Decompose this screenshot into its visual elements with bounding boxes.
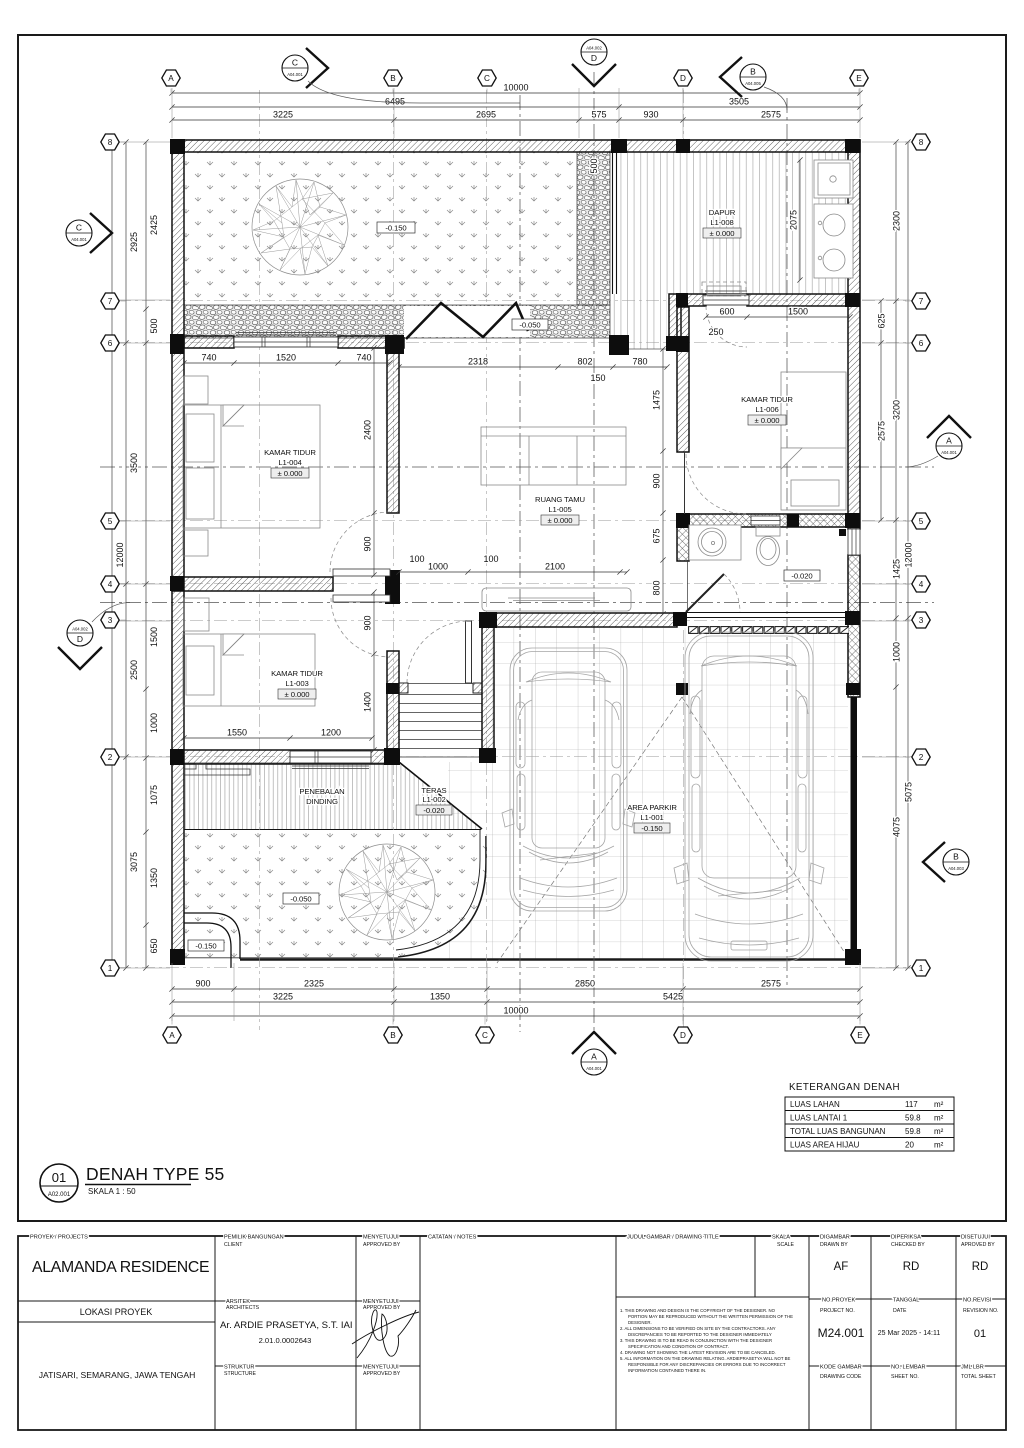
svg-text:L1-002: L1-002 — [422, 795, 445, 804]
svg-text:575: 575 — [591, 110, 606, 120]
svg-text:Ar. ARDIE PRASETYA, S.T. I: Ar. ARDIE PRASETYA, S.T. IAI — [220, 1320, 353, 1331]
svg-text:6: 6 — [108, 339, 113, 348]
svg-text:1400: 1400 — [363, 692, 373, 712]
svg-text:± 0.000: ± 0.000 — [285, 690, 310, 699]
svg-text:RUANG TAMU: RUANG TAMU — [535, 495, 585, 504]
svg-text:± 0.000: ± 0.000 — [278, 469, 303, 478]
svg-text:m²: m² — [934, 1100, 944, 1109]
svg-text:3075: 3075 — [129, 852, 139, 872]
svg-text:2925: 2925 — [129, 232, 139, 252]
svg-text:740: 740 — [356, 353, 371, 363]
svg-text:1500: 1500 — [788, 307, 808, 317]
svg-text:A04.003: A04.003 — [948, 866, 964, 871]
svg-text:150: 150 — [590, 373, 605, 383]
svg-text:59.8: 59.8 — [905, 1127, 921, 1136]
svg-text:3: 3 — [108, 616, 113, 625]
svg-text:D: D — [77, 634, 83, 644]
svg-text:JML LBR: JML LBR — [961, 1365, 984, 1371]
svg-text:-0.020: -0.020 — [791, 572, 812, 581]
svg-text:3505: 3505 — [729, 97, 749, 107]
svg-text:3225: 3225 — [273, 110, 293, 120]
svg-text:m²: m² — [934, 1114, 944, 1123]
svg-text:900: 900 — [363, 615, 373, 630]
svg-text:-0.050: -0.050 — [519, 321, 540, 330]
svg-text:JATISARI, SEMARANG, JAWA TENGA: JATISARI, SEMARANG, JAWA TENGAH — [39, 1370, 196, 1380]
svg-text:3225: 3225 — [273, 992, 293, 1002]
svg-text:2400: 2400 — [363, 420, 373, 440]
svg-text:B: B — [750, 67, 756, 77]
svg-text:900: 900 — [652, 473, 662, 488]
svg-text:DIPERIKSA: DIPERIKSA — [891, 1235, 921, 1241]
svg-text:1550: 1550 — [227, 728, 247, 738]
svg-text:L1-006: L1-006 — [755, 405, 778, 414]
svg-text:SKALA: SKALA — [772, 1235, 790, 1241]
svg-text:A04.002: A04.002 — [586, 46, 602, 51]
svg-text:LOKASI PROYEK: LOKASI PROYEK — [80, 1307, 153, 1317]
svg-text:D: D — [591, 53, 597, 63]
svg-text:2850: 2850 — [575, 979, 595, 989]
svg-text:INFORMATION CONTAINED THERE: INFORMATION CONTAINED THERE IN. — [628, 1368, 706, 1373]
svg-text:-0.050: -0.050 — [290, 895, 311, 904]
svg-text:SKALA 1 : 50: SKALA 1 : 50 — [88, 1187, 136, 1196]
svg-text:1475: 1475 — [652, 390, 662, 410]
svg-text:NO.REVISI: NO.REVISI — [963, 1298, 992, 1304]
svg-text:KAMAR TIDUR: KAMAR TIDUR — [741, 395, 793, 404]
svg-text:12000: 12000 — [904, 542, 914, 567]
svg-text:LUAS LAHAN: LUAS LAHAN — [790, 1100, 840, 1109]
svg-text:TERAS: TERAS — [421, 786, 446, 795]
svg-text:01: 01 — [52, 1170, 66, 1185]
svg-text:1350: 1350 — [149, 868, 159, 888]
svg-text:ARCHITECTS: ARCHITECTS — [226, 1305, 260, 1311]
svg-text:KAMAR TIDUR: KAMAR TIDUR — [264, 448, 316, 457]
svg-text:5. ALL INFORMATION ON THE: 5. ALL INFORMATION ON THE DRAWING RELATI… — [620, 1356, 790, 1361]
svg-text:8: 8 — [108, 138, 113, 147]
svg-text:SHEET NO.: SHEET NO. — [891, 1374, 919, 1380]
svg-text:3500: 3500 — [129, 453, 139, 473]
svg-text:L1-005: L1-005 — [548, 505, 571, 514]
svg-text:APPROVED BY: APPROVED BY — [363, 1371, 401, 1377]
svg-text:20: 20 — [905, 1141, 914, 1150]
svg-text:2: 2 — [919, 753, 924, 762]
svg-text:500: 500 — [149, 318, 159, 333]
svg-text:100: 100 — [409, 554, 424, 564]
svg-text:DAPUR: DAPUR — [709, 208, 736, 217]
svg-text:1000: 1000 — [149, 713, 159, 733]
svg-text:± 0.000: ± 0.000 — [548, 516, 573, 525]
svg-text:-0.020: -0.020 — [423, 806, 444, 815]
svg-text:675: 675 — [652, 528, 662, 543]
svg-text:A: A — [591, 1052, 597, 1062]
svg-text:6495: 6495 — [385, 97, 405, 107]
svg-text:DRAWN BY: DRAWN BY — [820, 1242, 848, 1248]
svg-text:D: D — [680, 1031, 686, 1040]
svg-text:A04.001: A04.001 — [287, 72, 303, 77]
svg-text:A04.005: A04.005 — [745, 81, 761, 86]
svg-text:1000: 1000 — [428, 562, 448, 572]
svg-text:A04.002: A04.002 — [72, 627, 88, 632]
svg-text:5: 5 — [108, 517, 113, 526]
svg-text:4. DRAWING NOT SHOWING TH: 4. DRAWING NOT SHOWING THE LATEST REVISI… — [620, 1350, 776, 1355]
svg-text:SPECIFICATION AND CONDITION: SPECIFICATION AND CONDITION OF CONTRACT. — [628, 1344, 729, 1349]
svg-text:APPROVED BY: APPROVED BY — [363, 1242, 401, 1248]
svg-text:1. THIS DRAWING AND DESIG: 1. THIS DRAWING AND DESIGN IS THE COPYRI… — [620, 1308, 776, 1313]
svg-text:LUAS LANTAI 1: LUAS LANTAI 1 — [790, 1114, 848, 1123]
svg-text:DENAH TYPE 55: DENAH TYPE 55 — [86, 1164, 224, 1184]
svg-text:STRUCTURE: STRUCTURE — [224, 1371, 257, 1377]
svg-text:CATATAN / NOTES: CATATAN / NOTES — [428, 1235, 477, 1241]
svg-text:PROYEK / PROJECTS: PROYEK / PROJECTS — [30, 1235, 88, 1241]
svg-text:250: 250 — [708, 327, 723, 337]
svg-text:TANGGAL: TANGGAL — [893, 1298, 919, 1304]
svg-text:KAMAR TIDUR: KAMAR TIDUR — [271, 669, 323, 678]
svg-text:CLIENT: CLIENT — [224, 1242, 243, 1248]
svg-text:MENYETUJUI: MENYETUJUI — [363, 1365, 399, 1371]
svg-text:01: 01 — [974, 1328, 986, 1340]
svg-text:2318: 2318 — [468, 357, 488, 367]
svg-text:RD: RD — [972, 1261, 989, 1273]
svg-text:TOTAL LUAS BANGUNAN: TOTAL LUAS BANGUNAN — [790, 1127, 886, 1136]
svg-text:L1-001: L1-001 — [640, 813, 663, 822]
svg-text:STRUKTUR: STRUKTUR — [224, 1365, 254, 1371]
svg-text:4075: 4075 — [892, 817, 902, 837]
svg-text:REVISION NO.: REVISION NO. — [963, 1308, 998, 1314]
svg-text:2695: 2695 — [476, 110, 496, 120]
svg-text:KETERANGAN DENAH: KETERANGAN DENAH — [789, 1082, 900, 1093]
svg-text:APPROVED BY: APPROVED BY — [363, 1305, 401, 1311]
svg-text:25 Mar 2025 - 14:11: 25 Mar 2025 - 14:11 — [878, 1330, 941, 1337]
svg-text:C: C — [484, 74, 490, 83]
svg-text:A: A — [168, 74, 174, 83]
svg-text:1350: 1350 — [430, 992, 450, 1002]
svg-text:8: 8 — [919, 138, 924, 147]
svg-text:KODE GAMBAR: KODE GAMBAR — [820, 1365, 862, 1371]
svg-text:A: A — [169, 1031, 175, 1040]
svg-text:2: 2 — [108, 753, 113, 762]
svg-text:L1-003: L1-003 — [285, 679, 308, 688]
svg-text:ALAMANDA RESIDENCE: ALAMANDA RESIDENCE — [32, 1259, 209, 1276]
svg-text:600: 600 — [719, 307, 734, 317]
svg-text:PEMILIK BANGUNGAN: PEMILIK BANGUNGAN — [224, 1235, 284, 1241]
svg-text:2575: 2575 — [761, 979, 781, 989]
svg-text:PENEBALAN: PENEBALAN — [299, 787, 344, 796]
svg-text:-0.150: -0.150 — [641, 824, 662, 833]
svg-text:900: 900 — [363, 536, 373, 551]
svg-text:-0.150: -0.150 — [195, 942, 216, 951]
svg-text:A04.001: A04.001 — [71, 237, 87, 242]
svg-text:A04.001: A04.001 — [941, 450, 957, 455]
svg-text:5425: 5425 — [663, 992, 683, 1002]
svg-text:RESPONSIBLE FOR ANY DISCREP: RESPONSIBLE FOR ANY DISCREPANCIES OR ERR… — [628, 1362, 786, 1367]
svg-text:1425: 1425 — [892, 559, 902, 579]
svg-text:500: 500 — [589, 158, 599, 173]
svg-text:E: E — [856, 74, 862, 83]
svg-text:M24.001: M24.001 — [818, 1326, 865, 1340]
svg-text:59.8: 59.8 — [905, 1114, 921, 1123]
svg-text:3: 3 — [919, 616, 924, 625]
svg-text:DRAWING CODE: DRAWING CODE — [820, 1374, 862, 1380]
svg-text:800: 800 — [652, 580, 662, 595]
svg-text:5: 5 — [919, 517, 924, 526]
svg-text:L1-008: L1-008 — [710, 218, 733, 227]
svg-text:DISETUJUI: DISETUJUI — [961, 1235, 990, 1241]
svg-text:A: A — [946, 436, 952, 446]
svg-text:6: 6 — [919, 339, 924, 348]
svg-text:D: D — [680, 74, 686, 83]
svg-text:NO. LEMBAR: NO. LEMBAR — [891, 1365, 926, 1371]
svg-text:4: 4 — [919, 580, 924, 589]
svg-text:DISCREPANCIES TO BE REPORTE: DISCREPANCIES TO BE REPORTED TO THE DESI… — [628, 1332, 772, 1337]
svg-text:2300: 2300 — [892, 211, 902, 231]
svg-text:RD: RD — [903, 1261, 920, 1273]
svg-text:B: B — [953, 852, 959, 862]
svg-text:2575: 2575 — [877, 421, 887, 441]
svg-text:4: 4 — [108, 580, 113, 589]
svg-text:1: 1 — [919, 964, 924, 973]
svg-text:A04.001: A04.001 — [586, 1066, 602, 1071]
svg-text:LUAS AREA HIJAU: LUAS AREA HIJAU — [790, 1141, 860, 1150]
svg-text:1200: 1200 — [321, 728, 341, 738]
svg-text:PROJECT NO.: PROJECT NO. — [820, 1308, 855, 1314]
svg-text:m²: m² — [934, 1127, 944, 1136]
svg-text:2425: 2425 — [149, 215, 159, 235]
svg-text:CHECKED BY: CHECKED BY — [891, 1242, 925, 1248]
svg-text:± 0.000: ± 0.000 — [755, 416, 780, 425]
svg-text:2. ALL DIMENSIONS TO BE: 2. ALL DIMENSIONS TO BE VERIFIED ON SITE… — [620, 1326, 776, 1331]
svg-text:B: B — [390, 1031, 396, 1040]
svg-text:1500: 1500 — [149, 627, 159, 647]
svg-text:C: C — [482, 1031, 488, 1040]
svg-text:m²: m² — [934, 1141, 944, 1150]
svg-text:2075: 2075 — [789, 210, 799, 230]
svg-text:2325: 2325 — [304, 979, 324, 989]
svg-text:C: C — [76, 223, 82, 233]
svg-text:DINDING: DINDING — [306, 797, 338, 806]
svg-text:APROVED BY: APROVED BY — [961, 1242, 995, 1248]
svg-text:C: C — [292, 58, 298, 68]
svg-text:2500: 2500 — [129, 660, 139, 680]
svg-text:B: B — [390, 74, 396, 83]
svg-text:930: 930 — [643, 110, 658, 120]
svg-text:7: 7 — [919, 297, 924, 306]
svg-text:1: 1 — [108, 964, 113, 973]
svg-text:117: 117 — [905, 1100, 918, 1109]
svg-text:AF: AF — [834, 1261, 849, 1273]
svg-text:7: 7 — [108, 297, 113, 306]
svg-text:740: 740 — [201, 353, 216, 363]
svg-text:L1-004: L1-004 — [278, 458, 302, 467]
svg-text:NO.PROYEK: NO.PROYEK — [822, 1298, 856, 1304]
svg-text:PORTION MAY BE REPRODUCED: PORTION MAY BE REPRODUCED WITHOUT THE WR… — [628, 1314, 793, 1319]
svg-text:802: 802 — [577, 357, 592, 367]
svg-text:DATE: DATE — [893, 1308, 907, 1314]
svg-text:625: 625 — [877, 313, 887, 328]
svg-text:900: 900 — [195, 979, 210, 989]
svg-text:1000: 1000 — [892, 642, 902, 662]
svg-text:12000: 12000 — [115, 542, 125, 567]
svg-text:650: 650 — [149, 938, 159, 953]
svg-text:10000: 10000 — [503, 1006, 528, 1016]
svg-text:2.01.0.0002643: 2.01.0.0002643 — [259, 1336, 312, 1345]
svg-text:± 0.000: ± 0.000 — [710, 229, 735, 238]
svg-text:3200: 3200 — [892, 400, 902, 420]
svg-text:E: E — [857, 1031, 863, 1040]
svg-text:2575: 2575 — [761, 110, 781, 120]
svg-text:DESIGNER.: DESIGNER. — [628, 1320, 652, 1325]
svg-text:A02.001: A02.001 — [48, 1192, 71, 1198]
svg-text:MENYETUJUI: MENYETUJUI — [363, 1235, 399, 1241]
svg-text:5075: 5075 — [904, 782, 914, 802]
svg-text:3. THIS DRAWING IS TO BE: 3. THIS DRAWING IS TO BE READ IN CONJUNC… — [620, 1338, 772, 1343]
svg-text:TOTAL SHEET: TOTAL SHEET — [961, 1374, 997, 1380]
svg-text:1075: 1075 — [149, 785, 159, 805]
svg-text:DIGAMBAR: DIGAMBAR — [820, 1235, 850, 1241]
svg-text:780: 780 — [632, 357, 647, 367]
svg-text:10000: 10000 — [503, 83, 528, 93]
svg-text:2100: 2100 — [545, 562, 565, 572]
svg-text:-0.150: -0.150 — [385, 224, 406, 233]
svg-text:100: 100 — [483, 554, 498, 564]
svg-text:JUDUL GAMBAR / DRAWING TIT: JUDUL GAMBAR / DRAWING TITLE — [627, 1235, 719, 1241]
svg-text:1520: 1520 — [276, 353, 296, 363]
svg-text:SCALE: SCALE — [777, 1242, 795, 1248]
svg-text:AREA PARKIR: AREA PARKIR — [627, 803, 677, 812]
